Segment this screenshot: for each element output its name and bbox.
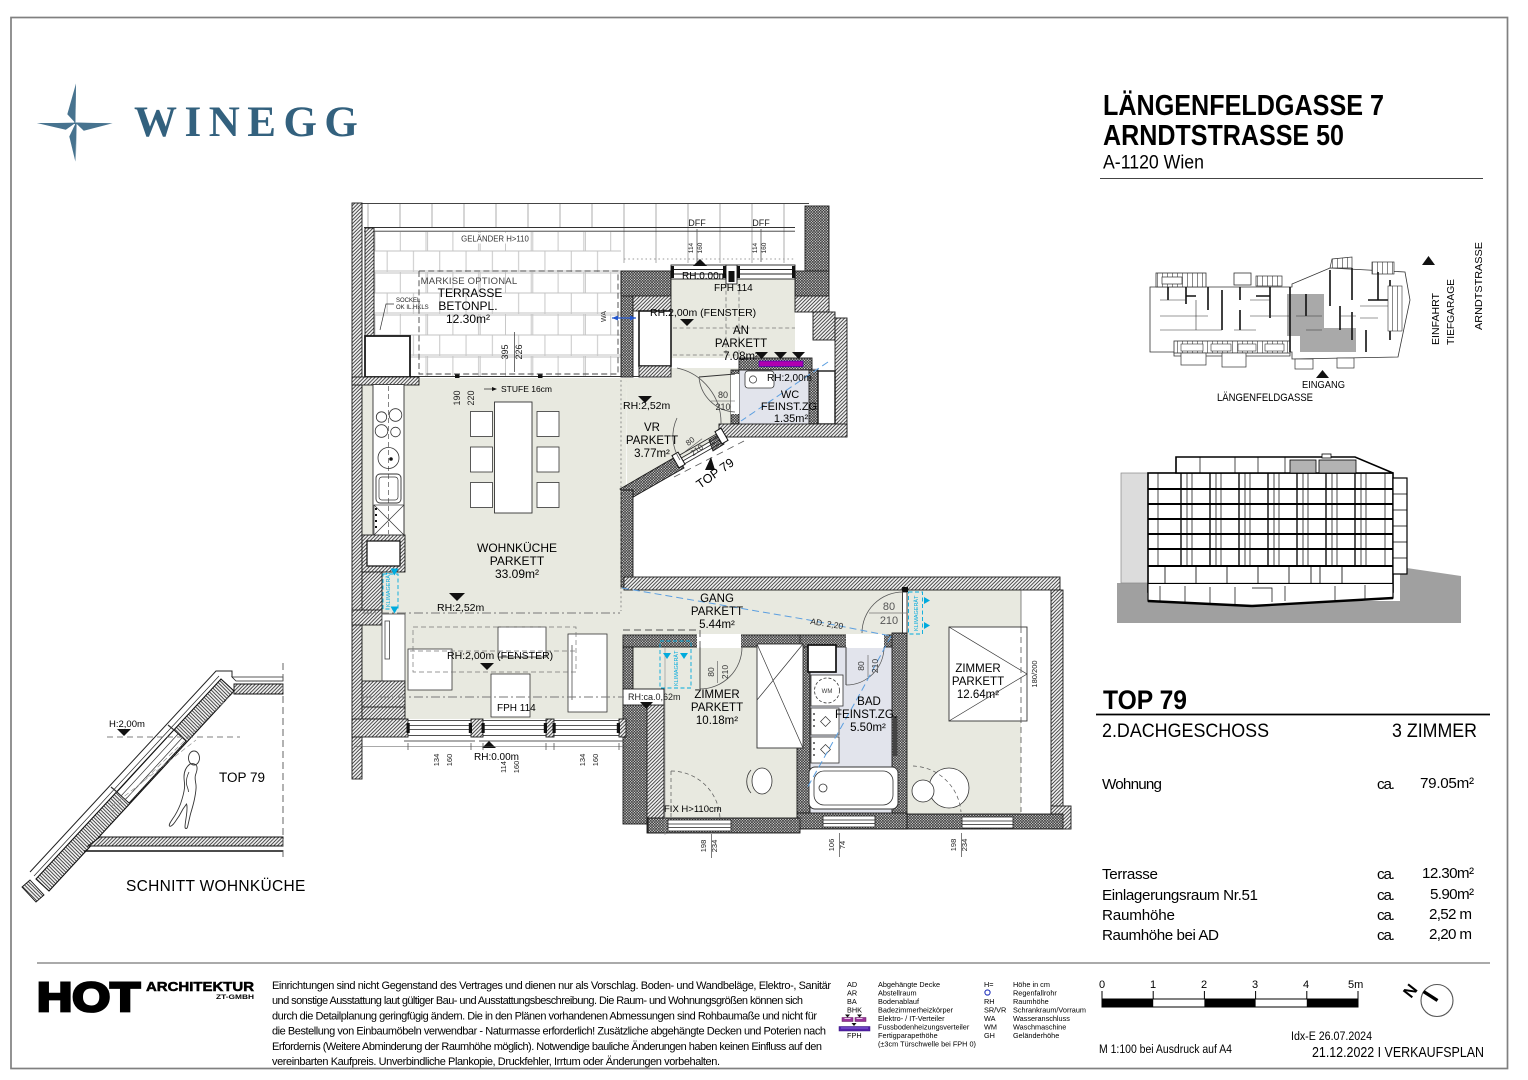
svg-text:12.64m²: 12.64m² — [957, 689, 999, 701]
svg-text:80: 80 — [718, 390, 728, 400]
svg-text:HOT: HOT — [37, 974, 140, 1020]
svg-text:2: 2 — [1201, 979, 1207, 991]
svg-text:160: 160 — [445, 754, 454, 767]
svg-text:GH: GH — [984, 1031, 995, 1040]
svg-text:Regenfallrohr: Regenfallrohr — [1013, 989, 1057, 998]
svg-text:die Bestellung von Einbaumöbel: die Bestellung von Einbaumöbeln verwendb… — [272, 1026, 826, 1038]
svg-text:WA: WA — [601, 311, 608, 322]
svg-text:RH:2,52m: RH:2,52m — [623, 400, 671, 412]
svg-text:SCHNITT WOHNKÜCHE: SCHNITT WOHNKÜCHE — [126, 877, 306, 895]
svg-text:5.44m²: 5.44m² — [699, 619, 735, 631]
svg-text:0: 0 — [1099, 979, 1105, 991]
svg-text:2,20 m: 2,20 m — [1429, 926, 1472, 943]
svg-text:3.77m²: 3.77m² — [634, 448, 670, 460]
svg-text:KLIMAGERÄT: KLIMAGERÄT — [673, 650, 680, 686]
svg-text:1: 1 — [1150, 979, 1156, 991]
svg-text:RH:2,00m (FENSTER): RH:2,00m (FENSTER) — [650, 307, 756, 319]
svg-text:(±3cm Türschwelle bei FPH 0): (±3cm Türschwelle bei FPH 0) — [878, 1040, 976, 1049]
svg-text:ca.: ca. — [1377, 927, 1395, 944]
svg-text:BHK: BHK — [847, 1006, 862, 1015]
svg-text:PARKETT: PARKETT — [691, 606, 743, 618]
svg-text:33.09m²: 33.09m² — [495, 567, 539, 581]
svg-text:80: 80 — [706, 667, 716, 677]
svg-text:21.12.2022 I VERKAUFSPLAN: 21.12.2022 I VERKAUFSPLAN — [1312, 1045, 1484, 1061]
svg-text:80: 80 — [883, 601, 895, 613]
svg-text:114: 114 — [752, 242, 759, 253]
svg-text:Einrichtungen sind nicht Gegen: Einrichtungen sind nicht Gegenstand des … — [272, 980, 831, 992]
svg-text:FEINST.ZG.: FEINST.ZG. — [835, 709, 897, 721]
svg-text:ca.: ca. — [1377, 866, 1395, 883]
svg-text:198: 198 — [949, 839, 958, 852]
svg-text:10.18m²: 10.18m² — [696, 715, 738, 727]
svg-text:3: 3 — [1252, 979, 1258, 991]
svg-text:TOP 79: TOP 79 — [219, 770, 265, 785]
svg-text:ca.: ca. — [1377, 776, 1395, 793]
svg-text:160: 160 — [512, 761, 521, 774]
svg-text:134: 134 — [432, 754, 441, 767]
svg-text:3 ZIMMER: 3 ZIMMER — [1392, 720, 1477, 742]
svg-text:ARNDTSTRASSE: ARNDTSTRASSE — [1474, 242, 1485, 330]
svg-text:12.30m²: 12.30m² — [1422, 865, 1474, 882]
svg-text:DFF: DFF — [688, 218, 706, 228]
svg-text:GELÄNDER H>110: GELÄNDER H>110 — [461, 235, 529, 244]
svg-text:PARKETT: PARKETT — [490, 554, 545, 568]
svg-text:Erfordernis (Weitere Abminderu: Erfordernis (Weitere Abminderung der Rau… — [272, 1041, 822, 1053]
svg-text:ZIMMER: ZIMMER — [694, 689, 739, 701]
svg-text:190: 190 — [452, 390, 462, 405]
svg-text:H:2,00m: H:2,00m — [109, 719, 145, 730]
svg-text:160: 160 — [591, 754, 600, 767]
svg-text:160: 160 — [697, 242, 704, 253]
svg-text:FIX H>110cm: FIX H>110cm — [664, 804, 722, 815]
svg-text:198: 198 — [699, 840, 708, 853]
svg-text:114: 114 — [688, 242, 695, 253]
svg-text:TIEFGARAGE: TIEFGARAGE — [1446, 279, 1457, 345]
svg-text:ZT-GMBH: ZT-GMBH — [216, 994, 254, 1001]
svg-text:N: N — [1400, 981, 1422, 1001]
svg-text:ARNDTSTRASSE 50: ARNDTSTRASSE 50 — [1103, 120, 1344, 152]
svg-text:7.08m²: 7.08m² — [723, 351, 759, 363]
svg-text:STUFE 16cm: STUFE 16cm — [501, 384, 552, 394]
svg-text:220: 220 — [466, 390, 476, 405]
svg-text:Wohnung: Wohnung — [1102, 776, 1162, 793]
svg-text:Idx-E 26.07.2024: Idx-E 26.07.2024 — [1291, 1029, 1372, 1043]
svg-text:FEINST.ZG: FEINST.ZG — [761, 401, 817, 413]
svg-text:ZIMMER: ZIMMER — [955, 663, 1000, 675]
svg-text:TOP 79: TOP 79 — [694, 456, 737, 492]
svg-text:WC: WC — [781, 389, 799, 401]
svg-text:5m: 5m — [1348, 979, 1363, 991]
svg-text:ca.: ca. — [1377, 887, 1395, 904]
svg-text:ARCHITEKTUR: ARCHITEKTUR — [146, 979, 255, 994]
svg-text:RH:2,52m: RH:2,52m — [437, 602, 485, 614]
svg-text:114: 114 — [499, 761, 508, 773]
svg-text:210: 210 — [880, 615, 898, 627]
svg-text:A-1120 Wien: A-1120 Wien — [1103, 153, 1204, 174]
svg-text:5.90m²: 5.90m² — [1430, 886, 1474, 903]
svg-text:PARKETT: PARKETT — [626, 435, 678, 447]
svg-text:FPH: FPH — [847, 1031, 862, 1040]
svg-text:RH:2,00m (FENSTER): RH:2,00m (FENSTER) — [447, 650, 553, 662]
svg-text:RH:2,00m: RH:2,00m — [767, 373, 812, 384]
svg-text:KLIMAGERÄT: KLIMAGERÄT — [385, 571, 392, 607]
svg-text:Raumhöhe: Raumhöhe — [1102, 907, 1175, 924]
svg-text:210: 210 — [720, 665, 730, 679]
svg-text:395: 395 — [500, 344, 510, 359]
svg-text:TOP 79: TOP 79 — [1103, 685, 1187, 715]
svg-text:VR: VR — [644, 422, 660, 434]
svg-text:und sonstige Ausstattung laut: und sonstige Ausstattung laut gültiger B… — [272, 995, 803, 1007]
svg-text:FPH 114: FPH 114 — [714, 283, 753, 294]
svg-text:1.35m²: 1.35m² — [774, 413, 809, 425]
svg-text:WM: WM — [822, 689, 833, 695]
svg-text:PARKETT: PARKETT — [691, 702, 743, 714]
svg-text:ca.: ca. — [1377, 907, 1395, 924]
svg-text:LÄNGENFELDGASSE 7: LÄNGENFELDGASSE 7 — [1103, 90, 1384, 122]
svg-text:durch die Detailplanung gering: durch die Detailplanung geringfügig ände… — [272, 1010, 817, 1022]
svg-text:KLIMAGERÄT: KLIMAGERÄT — [913, 595, 920, 631]
svg-text:Terrasse: Terrasse — [1102, 866, 1158, 883]
svg-text:DFF: DFF — [752, 218, 770, 228]
svg-text:OK IL.HKLS: OK IL.HKLS — [396, 305, 429, 311]
svg-text:2,52 m: 2,52 m — [1429, 906, 1472, 923]
svg-text:180/200: 180/200 — [1030, 660, 1039, 687]
svg-text:5.50m²: 5.50m² — [850, 722, 886, 734]
svg-text:WINEGG: WINEGG — [134, 99, 365, 146]
svg-text:FPH 114: FPH 114 — [497, 703, 536, 714]
svg-text:AN: AN — [733, 325, 749, 337]
svg-text:134: 134 — [578, 754, 587, 767]
svg-text:106: 106 — [827, 839, 836, 852]
svg-text:vereinbarten Kaufpreis. Unverb: vereinbarten Kaufpreis. Unverbindliche P… — [272, 1056, 720, 1068]
svg-text:GANG: GANG — [700, 593, 734, 605]
svg-text:BETONPL.: BETONPL. — [438, 299, 497, 313]
svg-text:WOHNKÜCHE: WOHNKÜCHE — [477, 541, 557, 555]
svg-text:RH:ca.0,62m: RH:ca.0,62m — [628, 692, 681, 702]
svg-text:160: 160 — [761, 242, 768, 253]
svg-text:2.DACHGESCHOSS: 2.DACHGESCHOSS — [1102, 720, 1269, 742]
svg-text:80: 80 — [856, 661, 866, 671]
svg-text:SOCKEL: SOCKEL — [396, 298, 421, 304]
svg-text:PARKETT: PARKETT — [715, 338, 767, 350]
svg-text:RH:0.00m: RH:0.00m — [682, 271, 727, 282]
svg-text:79.05m²: 79.05m² — [1420, 775, 1474, 792]
svg-text:226: 226 — [514, 344, 524, 359]
svg-text:Geländerhöhe: Geländerhöhe — [1013, 1031, 1059, 1040]
svg-text:12.30m²: 12.30m² — [446, 312, 490, 326]
svg-text:M 1:100 bei Ausdruck auf A4: M 1:100 bei Ausdruck auf A4 — [1099, 1042, 1232, 1056]
svg-text:H=: H= — [984, 980, 994, 989]
svg-text:EINGANG: EINGANG — [1302, 379, 1345, 391]
svg-text:BAD: BAD — [857, 696, 881, 708]
svg-text:Einlagerungsraum Nr.51: Einlagerungsraum Nr.51 — [1102, 887, 1258, 904]
svg-text:Raumhöhe bei AD: Raumhöhe bei AD — [1102, 927, 1219, 944]
svg-text:210: 210 — [715, 402, 730, 412]
svg-text:4: 4 — [1303, 979, 1309, 991]
svg-text:PARKETT: PARKETT — [952, 676, 1004, 688]
svg-text:210: 210 — [870, 659, 880, 673]
svg-text:LÄNGENFELDGASSE: LÄNGENFELDGASSE — [1217, 392, 1313, 404]
svg-text:TERRASSE: TERRASSE — [438, 286, 503, 300]
svg-text:EINFAHRT: EINFAHRT — [1431, 293, 1442, 345]
